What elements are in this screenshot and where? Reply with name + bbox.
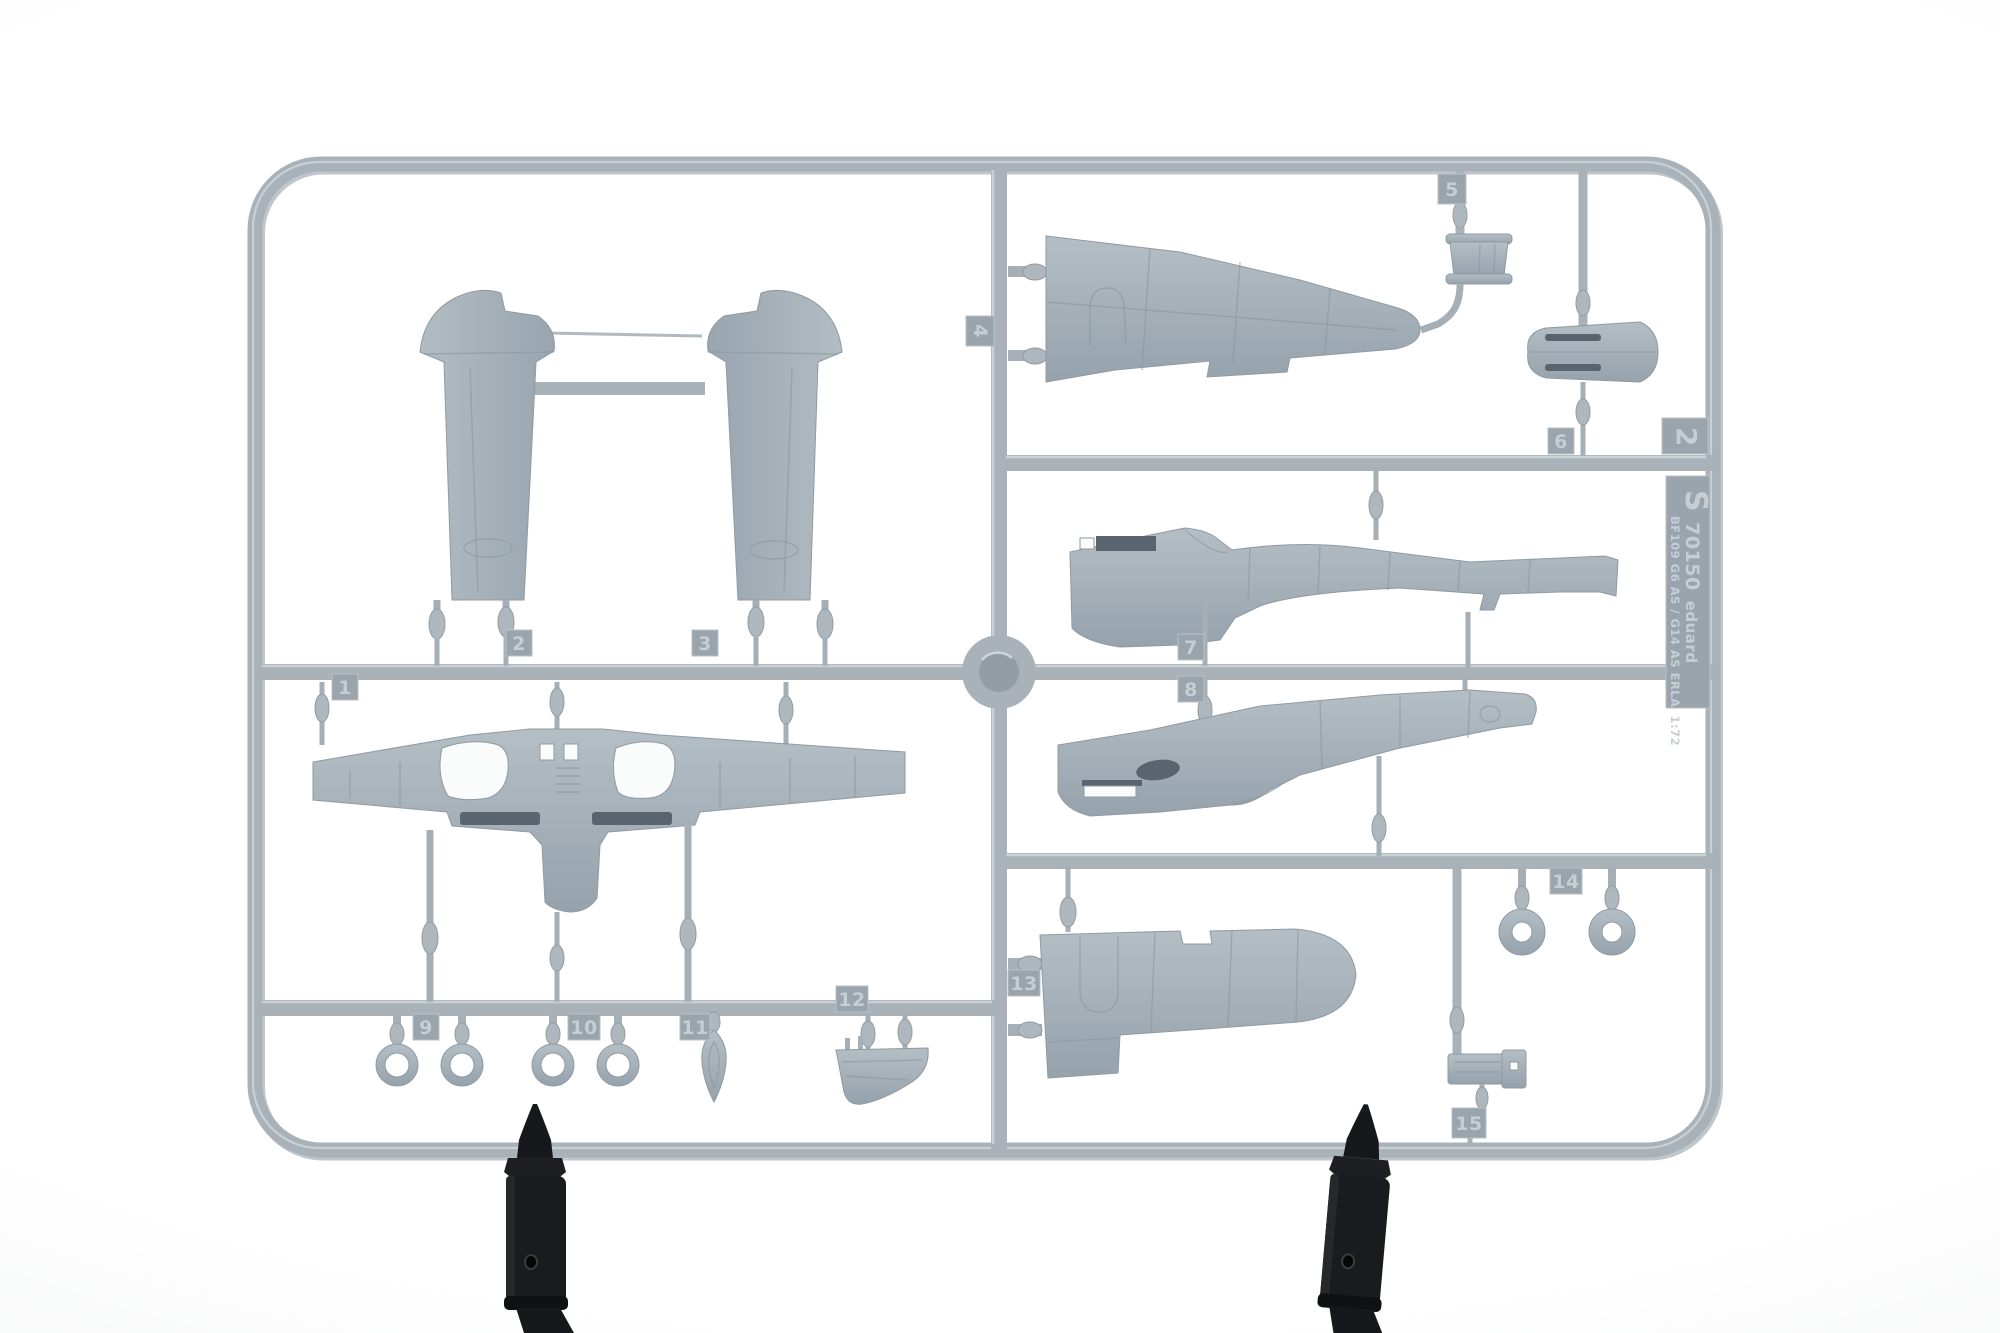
tab-7: 7 bbox=[1178, 634, 1204, 660]
pin-detail bbox=[858, 1036, 863, 1051]
cavity-number-tab: 2 bbox=[1662, 418, 1708, 454]
gate-bullet bbox=[429, 609, 445, 639]
tab-6: 6 bbox=[1548, 428, 1574, 454]
tab-number: 6 bbox=[1554, 431, 1568, 453]
tab-number: 3 bbox=[698, 633, 712, 655]
tab-3: 3 bbox=[692, 630, 718, 656]
sprue-letter: S bbox=[1678, 490, 1713, 512]
gate-bullet bbox=[1060, 897, 1076, 927]
gate-bullet bbox=[1450, 1007, 1464, 1033]
thin-connector-wings bbox=[548, 333, 702, 336]
tab-number: 7 bbox=[1184, 637, 1198, 659]
gate-bullet bbox=[861, 1021, 875, 1047]
tab-number: 1 bbox=[338, 677, 352, 699]
tab-10: 10 bbox=[568, 1014, 600, 1040]
gate-bullet bbox=[748, 607, 764, 637]
slot-cutout bbox=[540, 744, 554, 760]
part-upper-wing-right bbox=[708, 290, 842, 666]
gate-bullet bbox=[1372, 814, 1386, 842]
gate-bullet bbox=[1023, 348, 1047, 364]
tab-8: 8 bbox=[1178, 676, 1204, 702]
screw-hole bbox=[1342, 1254, 1355, 1269]
tab-number: 14 bbox=[1552, 871, 1579, 893]
tab-4: 4 bbox=[966, 316, 994, 346]
gate-bullet bbox=[779, 696, 793, 724]
exhaust-recess bbox=[1096, 536, 1156, 551]
sprue-gate bbox=[1421, 284, 1460, 330]
tab-12: 12 bbox=[836, 986, 868, 1012]
tab-11: 11 bbox=[680, 1014, 710, 1040]
cavity-number: 2 bbox=[1670, 427, 1703, 447]
gate-bullet bbox=[422, 922, 438, 954]
ring-body bbox=[376, 1044, 418, 1086]
tab-1: 1 bbox=[332, 674, 358, 700]
clamp-body-highlight bbox=[506, 1176, 515, 1306]
gate-bullet bbox=[546, 1023, 560, 1045]
ring bbox=[376, 1014, 418, 1086]
slot-cutout bbox=[564, 744, 578, 760]
screw-hole bbox=[525, 1255, 537, 1269]
tab-number: 9 bbox=[419, 1017, 433, 1039]
clamp-stem bbox=[516, 1308, 574, 1333]
ring-body bbox=[441, 1044, 483, 1086]
gate-bullet bbox=[1453, 202, 1467, 228]
tab-number: 2 bbox=[512, 633, 526, 655]
wheel-well-cutout bbox=[613, 742, 674, 799]
gate-bullet bbox=[455, 1023, 469, 1045]
gun-trough bbox=[1545, 334, 1601, 341]
gate-bullet bbox=[550, 688, 564, 716]
sprue-info-tab: S70150eduard BF109 G6 AS / G14 AS ERLA1:… bbox=[1666, 476, 1713, 746]
clamp-left bbox=[504, 1104, 574, 1333]
part-upper-wing-left bbox=[420, 290, 554, 666]
kit-scale: 1:72 bbox=[1668, 716, 1682, 747]
tab-number: 10 bbox=[570, 1017, 597, 1039]
sprue-photo: 1 2 3 4 5 6 7 8 9 10 11 12 13 14 15 2 S7… bbox=[0, 0, 2000, 1333]
pin-detail bbox=[845, 1038, 850, 1051]
gate-bullet bbox=[898, 1019, 912, 1045]
drum-rim-bottom bbox=[1446, 274, 1512, 284]
tab-2: 2 bbox=[506, 630, 532, 656]
part-wing-panel-top bbox=[1008, 236, 1420, 382]
tab-number: 8 bbox=[1184, 679, 1198, 701]
gate-bullet bbox=[680, 918, 696, 950]
gate-bullet bbox=[1476, 1087, 1488, 1109]
gate-bullet bbox=[1576, 290, 1590, 316]
tab-number: 15 bbox=[1455, 1113, 1482, 1135]
gate-bullet bbox=[611, 1023, 625, 1045]
ring-body bbox=[597, 1044, 639, 1086]
ring bbox=[597, 1014, 639, 1086]
clamp-jaw-tip bbox=[1343, 1103, 1384, 1160]
runner-connector-wings bbox=[533, 382, 705, 395]
photo-background: 1 2 3 4 5 6 7 8 9 10 11 12 13 14 15 2 S7… bbox=[0, 0, 2000, 1333]
gate-bullet bbox=[1023, 264, 1047, 280]
kit-name: BF109 G6 AS / G14 AS ERLA bbox=[1668, 516, 1682, 708]
gate-bullet bbox=[817, 609, 833, 639]
box-body bbox=[1448, 1054, 1506, 1084]
clamp-right bbox=[1314, 1102, 1406, 1333]
info-tab-line-2: BF109 G6 AS / G14 AS ERLA1:72 bbox=[1668, 516, 1682, 746]
ring bbox=[441, 1014, 483, 1086]
box-detail bbox=[1510, 1062, 1518, 1070]
part-wing-panel-bottom bbox=[1008, 866, 1356, 1078]
tab-number: 11 bbox=[681, 1017, 708, 1039]
wheel-well-cutout bbox=[440, 742, 508, 800]
wing-panel-body bbox=[1040, 929, 1356, 1078]
exhaust-recess bbox=[1082, 780, 1142, 786]
wing-half-body bbox=[708, 290, 842, 600]
tab-14: 14 bbox=[1550, 868, 1582, 894]
tab-5: 5 bbox=[1438, 174, 1466, 204]
clamp-collar bbox=[504, 1296, 568, 1310]
clamp-jaw-tip bbox=[517, 1104, 553, 1158]
tab-number: 13 bbox=[1010, 973, 1037, 995]
ring-body bbox=[532, 1044, 574, 1086]
wheel-ring-body bbox=[1589, 909, 1635, 955]
gate-bullet bbox=[315, 694, 329, 722]
brand-name: eduard bbox=[1682, 601, 1700, 664]
radiator-slot bbox=[592, 812, 672, 825]
part-fuselage-half-lower bbox=[1058, 678, 1536, 856]
wheel-ring-body bbox=[1499, 909, 1545, 955]
part-cowl-cone bbox=[1528, 290, 1658, 456]
exhaust-slot-cutout bbox=[1080, 538, 1094, 549]
exhaust-slot-cutout bbox=[1084, 786, 1136, 797]
part-drum bbox=[1421, 202, 1512, 330]
wing-half-body bbox=[420, 290, 554, 600]
gate-bullet bbox=[1018, 1022, 1042, 1038]
gate-bullet bbox=[390, 1023, 404, 1045]
radiator-slot bbox=[460, 812, 540, 825]
tab-9: 9 bbox=[413, 1014, 439, 1040]
tab-number: 5 bbox=[1445, 179, 1459, 201]
tab-number: 12 bbox=[838, 989, 865, 1011]
gun-trough bbox=[1545, 364, 1601, 371]
catalog-number: 70150 bbox=[1681, 522, 1703, 591]
tab-13: 13 bbox=[1008, 970, 1040, 996]
tab-15: 15 bbox=[1452, 1108, 1486, 1138]
gate-bullet bbox=[1605, 886, 1619, 910]
gate-bullet bbox=[1515, 886, 1529, 910]
tab-number: 4 bbox=[969, 324, 991, 338]
gate-bullet bbox=[550, 945, 564, 971]
part-fuselage-half-upper bbox=[1070, 468, 1618, 668]
gate-bullet bbox=[1576, 399, 1590, 425]
gate-bullet bbox=[1369, 491, 1383, 519]
part-curved-panel bbox=[836, 1014, 928, 1104]
part-lower-wing bbox=[313, 682, 905, 1002]
